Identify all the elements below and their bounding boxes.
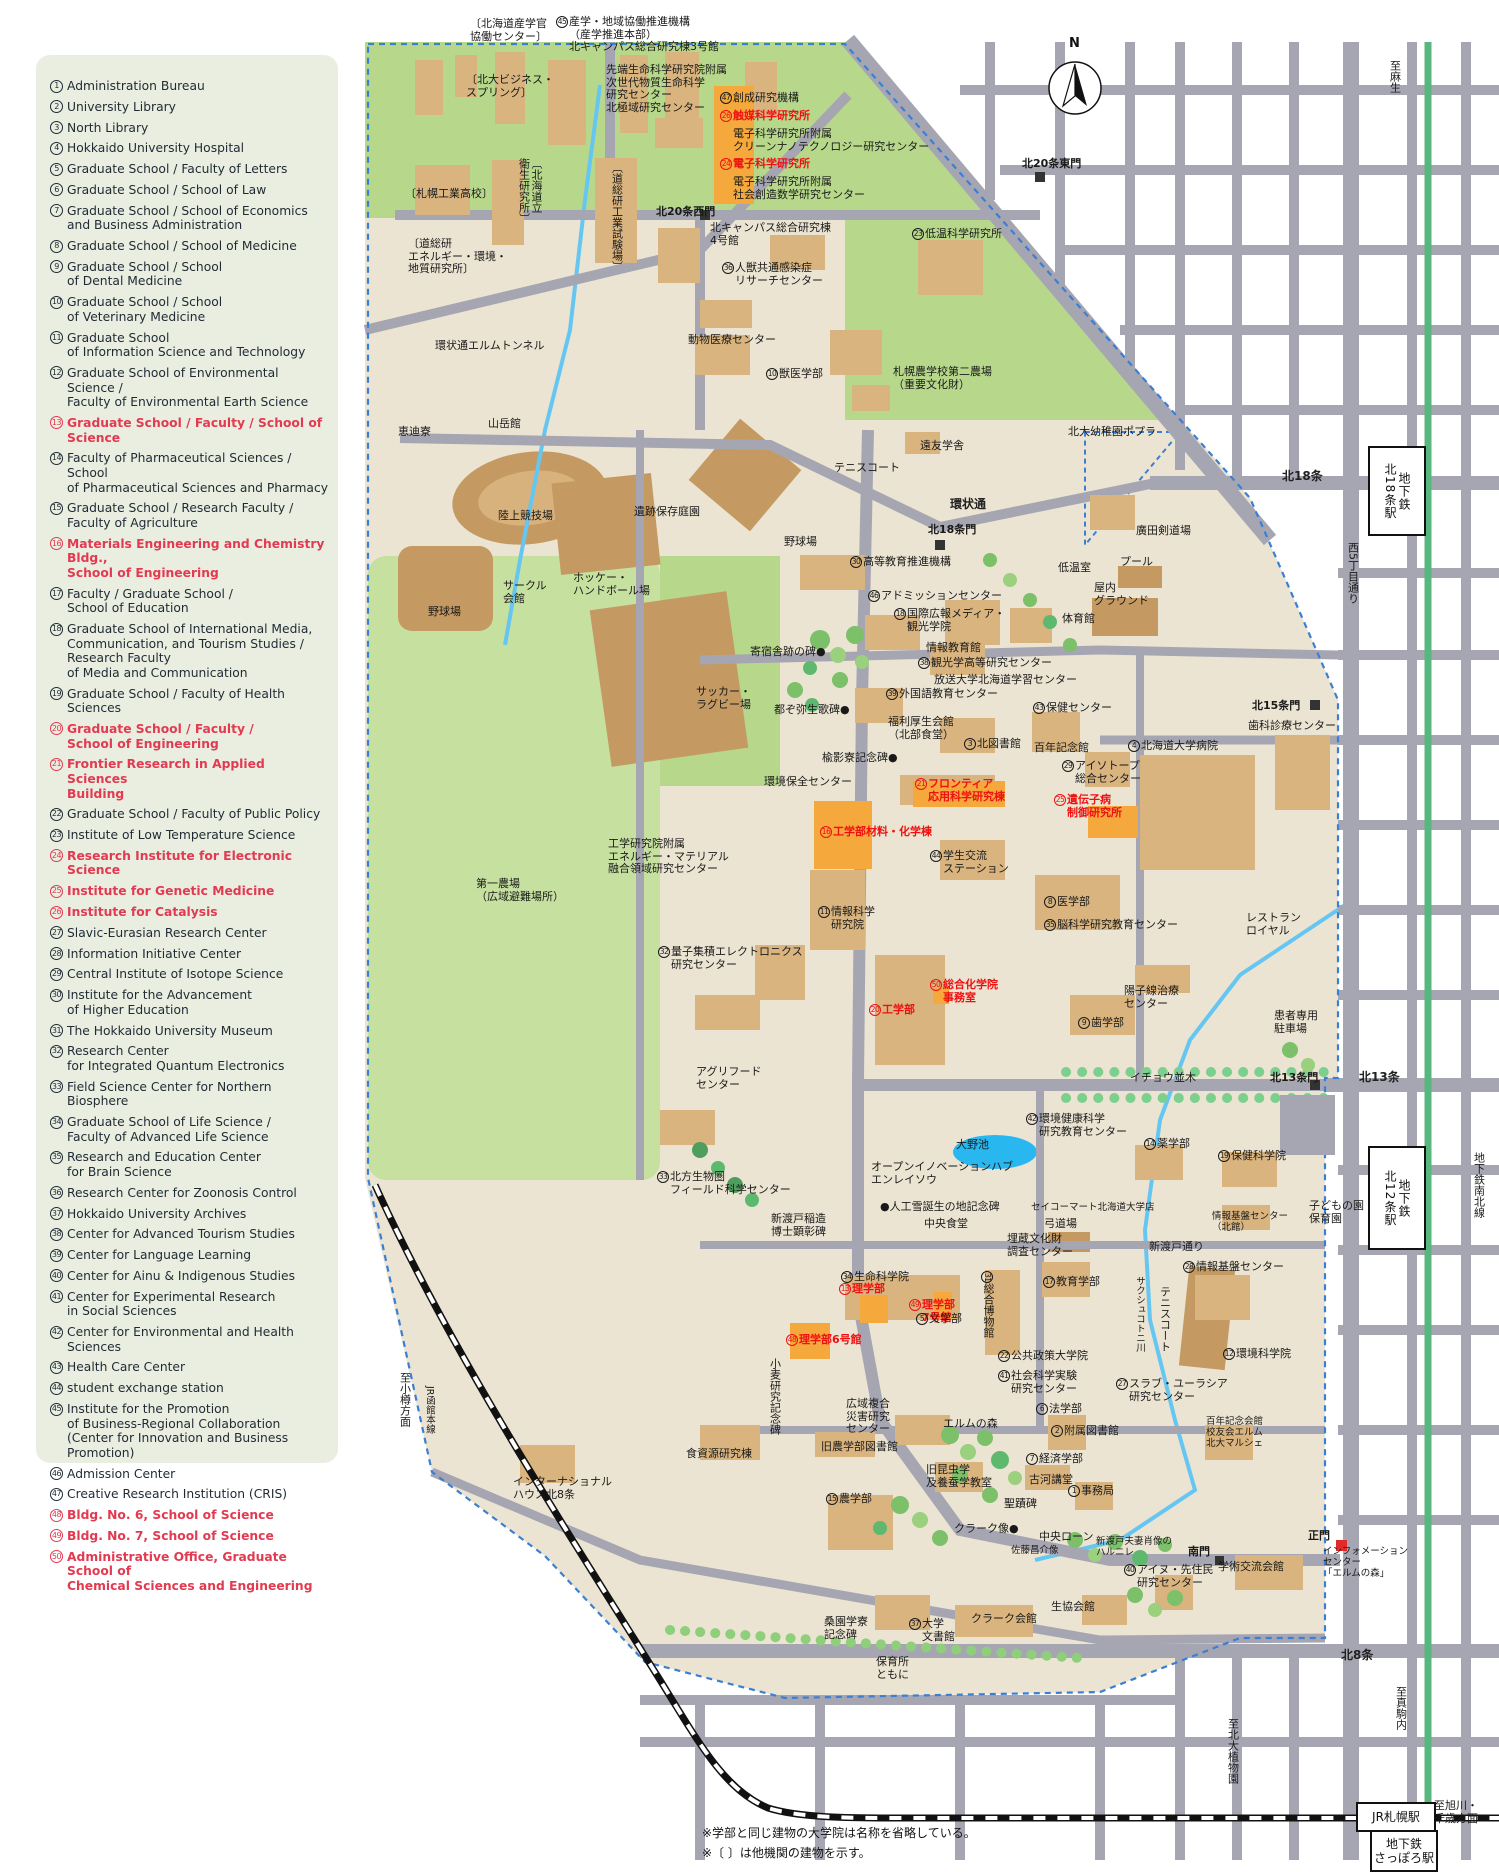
legend-item: 15Graduate School / Research Faculty / F… xyxy=(50,501,328,530)
legend-item: 31The Hokkaido University Museum xyxy=(50,1024,328,1039)
legend-item: 20Graduate School / Faculty / School of … xyxy=(50,722,328,751)
legend-item: 19Graduate School / Faculty of Health Sc… xyxy=(50,687,328,716)
legend-item: 46Admission Center xyxy=(50,1467,328,1482)
legend-item: 11Graduate School of Information Science… xyxy=(50,331,328,360)
legend-item: 50Administrative Office, Graduate School… xyxy=(50,1550,328,1594)
legend-item: 17Faculty / Graduate School / School of … xyxy=(50,587,328,616)
legend-item: 9Graduate School / School of Dental Medi… xyxy=(50,260,328,289)
campus-map-page: N 1Administration Bureau2University Libr… xyxy=(0,0,1499,1872)
legend-item: 13Graduate School / Faculty / School of … xyxy=(50,416,328,445)
legend-item: 41Center for Experimental Research in So… xyxy=(50,1290,328,1319)
legend-item: 24Research Institute for Electronic Scie… xyxy=(50,849,328,878)
legend-item: 22Graduate School / Faculty of Public Po… xyxy=(50,807,328,822)
legend-item: 18Graduate School of International Media… xyxy=(50,622,328,680)
legend-list: 1Administration Bureau2University Librar… xyxy=(50,79,328,1593)
legend-item: 43Health Care Center xyxy=(50,1360,328,1375)
legend-item: 27Slavic-Eurasian Research Center xyxy=(50,926,328,941)
legend-item: 14Faculty of Pharmaceutical Sciences / S… xyxy=(50,451,328,495)
legend-item: 32Research Center for Integrated Quantum… xyxy=(50,1044,328,1073)
legend-item: 4Hokkaido University Hospital xyxy=(50,141,328,156)
legend-item: 23Institute of Low Temperature Science xyxy=(50,828,328,843)
legend-item: 42Center for Environmental and Health Sc… xyxy=(50,1325,328,1354)
legend-item: 44student exchange station xyxy=(50,1381,328,1396)
legend-item: 8Graduate School / School of Medicine xyxy=(50,239,328,254)
legend-item: 47Creative Research Institution (CRIS) xyxy=(50,1487,328,1502)
legend-panel: 1Administration Bureau2University Librar… xyxy=(36,55,338,1463)
legend-item: 45Institute for the Promotion of Busines… xyxy=(50,1402,328,1460)
ono-pond xyxy=(953,1135,1037,1169)
legend-item: 3North Library xyxy=(50,121,328,136)
legend-item: 38Center for Advanced Tourism Studies xyxy=(50,1227,328,1242)
legend-item: 10Graduate School / School of Veterinary… xyxy=(50,295,328,324)
baseball-west xyxy=(398,546,493,631)
legend-item: 48Bldg. No. 6, School of Science xyxy=(50,1508,328,1523)
legend-item: 49Bldg. No. 7, School of Science xyxy=(50,1529,328,1544)
legend-item: 5Graduate School / Faculty of Letters xyxy=(50,162,328,177)
legend-item: 12Graduate School of Environmental Scien… xyxy=(50,366,328,410)
hockey-field xyxy=(551,473,660,575)
main-gate-mark xyxy=(1336,1540,1347,1551)
legend-item: 26Institute for Catalysis xyxy=(50,905,328,920)
legend-item: 37Hokkaido University Archives xyxy=(50,1207,328,1222)
legend-item: 25Institute for Genetic Medicine xyxy=(50,884,328,899)
legend-item: 1Administration Bureau xyxy=(50,79,328,94)
legend-item: 29Central Institute of Isotope Science xyxy=(50,967,328,982)
indoor-ground xyxy=(1092,598,1158,636)
legend-item: 33Field Science Center for Northern Bios… xyxy=(50,1080,328,1109)
legend-item: 36Research Center for Zoonosis Control xyxy=(50,1186,328,1201)
legend-item: 21Frontier Research in Applied Sciences … xyxy=(50,757,328,801)
legend-item: 40Center for Ainu & Indigenous Studies xyxy=(50,1269,328,1284)
legend-item: 34Graduate School of Life Science / Facu… xyxy=(50,1115,328,1144)
legend-item: 30Institute for the Advancement of Highe… xyxy=(50,988,328,1017)
legend-item: 7Graduate School / School of Economics a… xyxy=(50,204,328,233)
compass-north-label: N xyxy=(1069,36,1080,51)
legend-item: 6Graduate School / School of Law xyxy=(50,183,328,198)
pool xyxy=(1118,566,1162,588)
legend-item: 2University Library xyxy=(50,100,328,115)
legend-item: 28Information Initiative Center xyxy=(50,947,328,962)
legend-item: 16Materials Engineering and Chemistry Bl… xyxy=(50,537,328,581)
legend-item: 35Research and Education Center for Brai… xyxy=(50,1150,328,1179)
soccer-rugby-field xyxy=(590,591,749,767)
compass-icon xyxy=(1049,62,1101,114)
legend-item: 39Center for Language Learning xyxy=(50,1248,328,1263)
